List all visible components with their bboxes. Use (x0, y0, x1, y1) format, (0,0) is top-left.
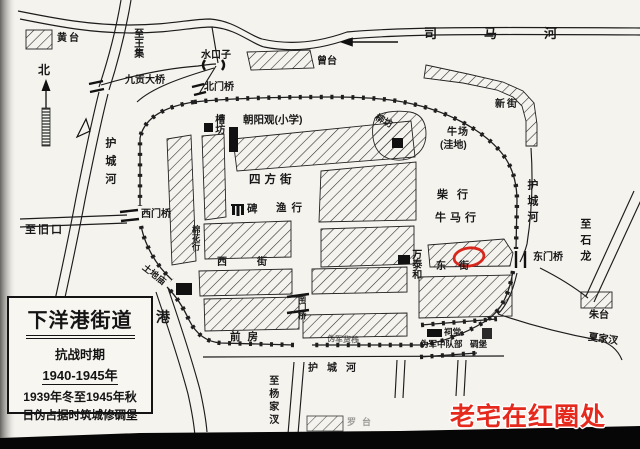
label-citang: 祠堂 (444, 328, 461, 337)
label-niuma-hang: 牛马行 (435, 213, 480, 225)
label-niuchang: 牛场 (447, 128, 469, 139)
label-luotai: 罗台 (347, 418, 377, 428)
label-niuchang-note: (洼地) (440, 141, 467, 152)
label-ximen-bridge: 西门桥 (141, 210, 171, 221)
label-mianhua-hang: 棉花行 (191, 225, 200, 251)
red-annotation-text: 老宅在红圈处 (450, 397, 606, 433)
label-qianfang: 前房 (230, 332, 265, 343)
label-moat-left: 护城河 (103, 137, 115, 191)
stele-icon (231, 204, 244, 216)
map-note-line2: 日伪占据时筑城修碉堡 (9, 407, 151, 423)
label-moat-right: 护城河 (525, 179, 537, 227)
label-chaoyang-school: 朝阳观(小学) (243, 115, 303, 126)
label-jiugong-bridge: 九贡大桥 (125, 76, 165, 87)
label-dong-street: 东街 (436, 262, 482, 273)
label-weijun-zhongduibu: 伪军中队部 (420, 340, 463, 349)
label-shuikouzi: 水口子 (201, 51, 231, 62)
label-north: 北 (38, 64, 50, 77)
label-sima-river: 司马河 (424, 27, 604, 41)
label-zhi-yangjiacha: 至杨家汊 (266, 375, 277, 427)
label-xi-street: 西街 (217, 258, 297, 269)
scanned-street-map: 黄台 至王集 北 九贡大桥 水口子 北门桥 曾台 司马河 新街 护城河 护城河 … (0, 0, 640, 449)
label-zengtai: 曾台 (317, 57, 337, 68)
label-yuhang: 渔行 (276, 203, 307, 214)
label-weijun-huozhan: 伪军货栈 (327, 335, 359, 345)
label-stele: 碑 (247, 204, 258, 215)
label-zhi-jiukou: 至旧口 (25, 225, 64, 237)
map-title-box: 下洋港街道 抗战时期 1940-1945年 1939年冬至1945年秋 日伪占据… (7, 296, 153, 414)
label-dongmen-bridge: 东门桥 (533, 253, 563, 264)
label-huangtai: 黄台 (57, 34, 81, 45)
map-title: 下洋港街道 (26, 301, 135, 339)
label-zhi-wangji: 至王集 (131, 28, 142, 58)
label-sifang-street: 四方街 (249, 174, 296, 186)
label-wantaihe: 万泰和 (409, 249, 420, 279)
map-note-line1: 1939年冬至1945年秋 (9, 388, 151, 405)
label-beimen-bridge: 北门桥 (204, 83, 234, 94)
label-caofang: 槽坊 (212, 114, 223, 134)
north-arrow (42, 79, 51, 146)
label-zhutai: 朱台 (589, 311, 609, 322)
label-nanmen-bridge: 南门桥 (297, 294, 306, 320)
label-zhi-shilong: 至石龙 (578, 218, 590, 266)
label-chai-hang: 柴行 (437, 190, 477, 202)
map-subtitle-years: 1940-1945年 (42, 365, 117, 385)
label-xinjie: 新街 (495, 100, 519, 111)
label-moat-bottom: 护城河 (308, 364, 365, 375)
label-gang: 港 (156, 310, 170, 325)
label-diaobao: 碉堡 (470, 340, 487, 349)
map-subtitle-period: 抗战时期 (9, 344, 151, 363)
